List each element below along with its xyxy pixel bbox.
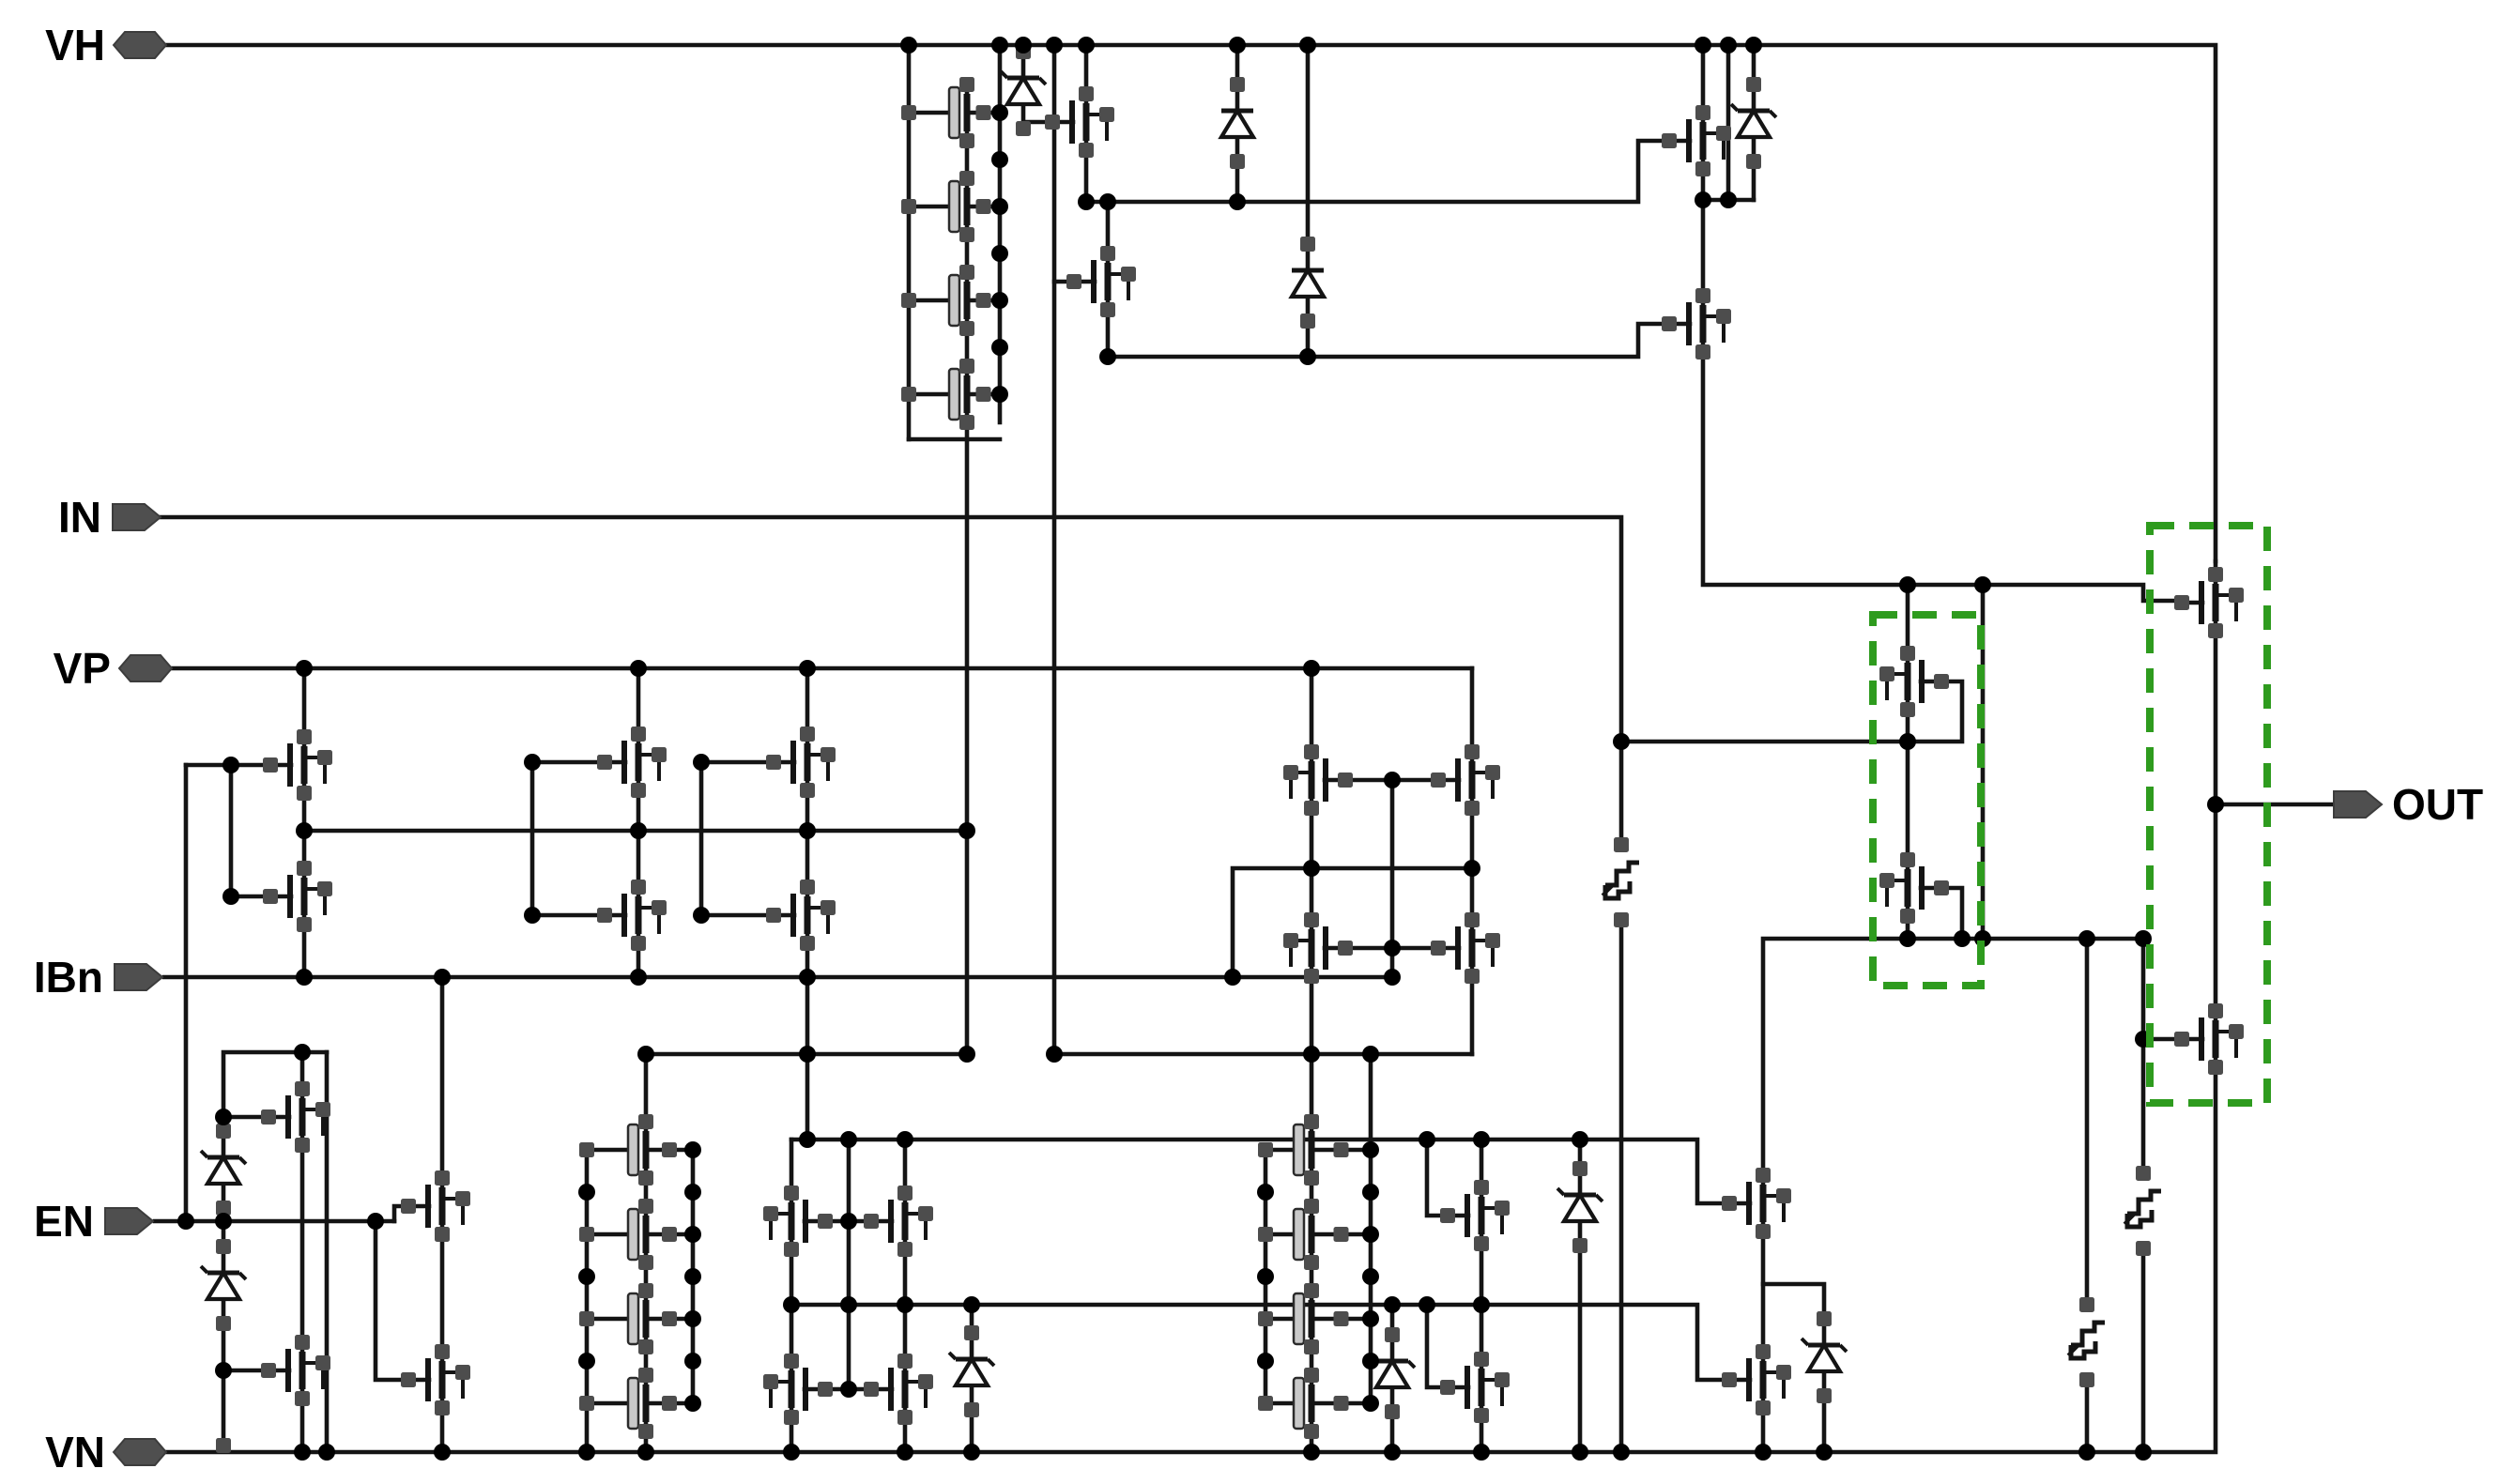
- terminal-square: [1100, 246, 1115, 261]
- mosfet-gate-bar: [888, 1200, 894, 1243]
- junction-dot: [963, 1444, 980, 1461]
- junction-dot: [897, 1131, 913, 1148]
- terminal-square: [638, 1114, 653, 1129]
- junction-dot: [991, 151, 1008, 168]
- terminal-square: [216, 1239, 231, 1254]
- terminal-square: [1304, 1283, 1319, 1298]
- terminal-square: [1304, 801, 1319, 816]
- junction-dot: [799, 822, 816, 839]
- terminal-square: [1776, 1365, 1791, 1380]
- terminal-square: [638, 1339, 653, 1354]
- terminal-square: [964, 1402, 979, 1417]
- stack-gate-plate: [628, 1293, 638, 1344]
- terminal-square: [1258, 1142, 1273, 1157]
- terminal-square: [435, 1227, 450, 1242]
- terminal-square: [401, 1199, 416, 1214]
- mosfet-gate-bar: [425, 1358, 431, 1401]
- terminal-square: [2174, 595, 2189, 610]
- junction-dot: [1257, 1268, 1274, 1285]
- terminal-square: [295, 1335, 310, 1350]
- zener-diode-icon: [207, 1273, 239, 1299]
- terminal-square: [1614, 837, 1629, 852]
- zener-hook: [1408, 1361, 1415, 1368]
- mosfet-gate-bar: [1686, 119, 1692, 162]
- terminal-square: [1474, 1236, 1489, 1251]
- mosfet-gate-bar: [1919, 866, 1925, 910]
- mosfet-gate-bar: [1465, 1194, 1470, 1237]
- junction-dot: [991, 198, 1008, 215]
- junction-dot: [2078, 1444, 2095, 1461]
- terminal-square: [1465, 969, 1480, 984]
- stack-gate-plate: [949, 275, 959, 326]
- port-pin-ibn: [115, 964, 162, 990]
- junction-dot: [991, 292, 1008, 309]
- terminal-square: [800, 727, 815, 742]
- zener-hook: [1039, 78, 1046, 84]
- junction-dot: [1384, 969, 1401, 986]
- junction-dot: [799, 969, 816, 986]
- terminal-square: [579, 1142, 594, 1157]
- terminal-square: [1695, 161, 1710, 176]
- junction-dot: [840, 1213, 857, 1230]
- diode-icon: [1292, 270, 1324, 297]
- terminal-square: [631, 727, 646, 742]
- terminal-square: [818, 1214, 833, 1229]
- stack-gate-plate: [628, 1124, 638, 1175]
- terminal-square: [579, 1311, 594, 1326]
- junction-dot: [578, 1444, 595, 1461]
- junction-dot: [991, 339, 1008, 356]
- port-pin-out: [2334, 791, 2382, 818]
- junction-dot: [215, 1362, 232, 1379]
- junction-dot: [1303, 1444, 1320, 1461]
- terminal-square: [1300, 314, 1315, 329]
- terminal-square: [295, 1391, 310, 1406]
- terminal-square: [435, 1170, 450, 1186]
- zener-diode-icon: [1808, 1345, 1840, 1371]
- junction-dot: [1720, 191, 1737, 208]
- mosfet-gate-bar: [790, 741, 796, 784]
- terminal-square: [1756, 1224, 1771, 1239]
- terminal-square: [959, 321, 974, 336]
- wire: [1427, 1140, 1446, 1216]
- terminal-square: [864, 1382, 879, 1397]
- terminal-square: [1304, 1424, 1319, 1439]
- junction-dot: [1362, 1310, 1379, 1327]
- junction-dot: [1473, 1296, 1490, 1313]
- terminal-square: [1900, 702, 1915, 717]
- terminal-square: [435, 1344, 450, 1359]
- junction-dot: [799, 660, 816, 677]
- mosfet-gate-bar: [1323, 926, 1328, 970]
- junction-dot: [1613, 733, 1630, 750]
- wire: [161, 517, 1621, 1452]
- junction-dot: [783, 1296, 800, 1313]
- terminal-square: [317, 881, 332, 896]
- mosfet-gate-bar: [425, 1185, 431, 1228]
- terminal-square: [821, 900, 836, 915]
- junction-dot: [684, 1395, 701, 1412]
- terminal-square: [261, 1363, 276, 1378]
- terminal-square: [1431, 941, 1446, 956]
- junction-dot: [1257, 1353, 1274, 1369]
- junction-dot: [578, 1184, 595, 1201]
- zener-hook: [1596, 1195, 1603, 1201]
- terminal-square: [784, 1354, 799, 1369]
- stack-gate-plate: [628, 1209, 638, 1260]
- terminal-square: [1304, 1170, 1319, 1186]
- wire: [1703, 45, 2180, 601]
- zener-hook: [239, 1273, 246, 1279]
- terminal-square: [1474, 1352, 1489, 1367]
- junction-dot: [637, 1046, 654, 1063]
- terminal-square: [1304, 1199, 1319, 1214]
- terminal-square: [216, 1438, 231, 1453]
- mosfet-gate-bar: [1746, 1358, 1752, 1401]
- terminal-square: [1283, 933, 1298, 948]
- terminal-square: [818, 1382, 833, 1397]
- zener-diode-icon: [1007, 78, 1039, 104]
- terminal-square: [976, 199, 991, 214]
- terminal-square: [1900, 909, 1915, 924]
- terminal-square: [631, 880, 646, 895]
- terminal-square: [821, 747, 836, 762]
- terminal-square: [897, 1410, 913, 1425]
- terminal-square: [897, 1186, 913, 1201]
- junction-dot: [900, 37, 917, 54]
- terminal-square: [1879, 666, 1894, 681]
- mosfet-gate-bar: [1465, 1366, 1470, 1409]
- junction-dot: [2207, 796, 2224, 813]
- mosfet-gate-bar: [287, 743, 293, 787]
- wire: [1233, 868, 1472, 977]
- terminal-square: [1334, 1227, 1349, 1242]
- junction-dot: [1257, 1184, 1274, 1201]
- junction-dot: [959, 1046, 975, 1063]
- terminal-square: [763, 1374, 778, 1389]
- terminal-square: [1756, 1168, 1771, 1183]
- junction-dot: [1899, 576, 1916, 593]
- terminal-square: [1431, 773, 1446, 788]
- terminal-square: [1695, 344, 1710, 360]
- zener-hook: [201, 1266, 207, 1273]
- junction-dot: [1362, 1184, 1379, 1201]
- terminal-square: [1300, 237, 1315, 252]
- terminal-square: [435, 1400, 450, 1415]
- terminal-square: [261, 1109, 276, 1124]
- junction-dot: [1362, 1395, 1379, 1412]
- wire: [1086, 141, 1667, 202]
- junction-dot: [1015, 37, 1032, 54]
- terminal-square: [297, 861, 312, 876]
- zener-hook: [1770, 111, 1776, 117]
- terminal-square: [1304, 969, 1319, 984]
- terminal-square: [1304, 1114, 1319, 1129]
- junction-dot: [1745, 37, 1762, 54]
- port-label-out: OUT: [2392, 780, 2483, 829]
- mosfet-gate-bar: [1323, 758, 1328, 802]
- terminal-square: [1756, 1400, 1771, 1415]
- terminal-square: [959, 171, 974, 186]
- junction-dot: [1299, 37, 1316, 54]
- junction-dot: [296, 969, 313, 986]
- port-pin-vp: [119, 655, 172, 681]
- junction-dot: [1078, 37, 1095, 54]
- terminal-square: [959, 265, 974, 280]
- terminal-square: [2079, 1297, 2094, 1312]
- junction-dot: [840, 1296, 857, 1313]
- mosfet-gate-bar: [285, 1095, 291, 1139]
- zener-diode-icon: [207, 1157, 239, 1184]
- terminal-square: [662, 1396, 677, 1411]
- terminal-square: [1495, 1372, 1510, 1387]
- port-label-ibn: IBn: [34, 953, 103, 1002]
- zener-hook: [949, 1353, 956, 1359]
- terminal-square: [297, 729, 312, 744]
- terminal-square: [1817, 1311, 1832, 1326]
- terminal-square: [1879, 873, 1894, 888]
- terminal-square: [1716, 126, 1731, 141]
- junction-dot: [693, 907, 710, 924]
- stack-gate-plate: [1294, 1378, 1304, 1429]
- mosfet-gate-bar: [888, 1368, 894, 1411]
- terminal-square: [1695, 105, 1710, 120]
- terminal-square: [766, 908, 781, 923]
- stack-gate-plate: [1294, 1209, 1304, 1260]
- terminal-square: [1099, 107, 1114, 122]
- junction-dot: [1303, 1046, 1320, 1063]
- terminal-square: [1934, 674, 1949, 689]
- mosfet-gate-bar: [287, 875, 293, 918]
- zener-hook: [988, 1359, 994, 1366]
- zener-hook: [1840, 1345, 1847, 1352]
- terminal-square: [897, 1354, 913, 1369]
- terminal-square: [2136, 1241, 2151, 1256]
- terminal-square: [1474, 1408, 1489, 1423]
- junction-dot: [840, 1131, 857, 1148]
- junction-dot: [578, 1268, 595, 1285]
- junction-dot: [684, 1268, 701, 1285]
- junction-dot: [1299, 348, 1316, 365]
- terminal-square: [216, 1124, 231, 1139]
- stack-gate-plate: [949, 181, 959, 232]
- wire: [376, 1221, 406, 1380]
- junction-dot: [1362, 1353, 1379, 1369]
- terminal-square: [297, 786, 312, 801]
- junction-dot: [684, 1184, 701, 1201]
- terminal-square: [1572, 1161, 1587, 1176]
- terminal-square: [959, 77, 974, 92]
- mosfet-gate-bar: [1746, 1182, 1752, 1225]
- terminal-square: [763, 1206, 778, 1221]
- zener-hook: [201, 1151, 207, 1157]
- junction-dot: [1695, 191, 1711, 208]
- terminal-square: [1756, 1344, 1771, 1359]
- terminal-square: [455, 1191, 470, 1206]
- terminal-square: [901, 105, 916, 120]
- junction-dot: [991, 386, 1008, 403]
- terminal-square: [1385, 1327, 1400, 1342]
- terminal-square: [315, 1102, 330, 1117]
- terminal-square: [1283, 765, 1298, 780]
- terminal-square: [579, 1396, 594, 1411]
- terminal-square: [1258, 1227, 1273, 1242]
- mosfet-gate-bar: [1686, 302, 1692, 345]
- port-label-vp: VP: [54, 644, 111, 693]
- junction-dot: [799, 1046, 816, 1063]
- junction-dot: [1974, 576, 1991, 593]
- terminal-square: [784, 1242, 799, 1257]
- mosfet-gate-bar: [621, 894, 627, 937]
- stack-gate-plate: [628, 1378, 638, 1429]
- junction-dot: [222, 888, 239, 905]
- wire: [164, 45, 2216, 561]
- terminal-square: [2208, 623, 2223, 638]
- stack-gate-plate: [1294, 1293, 1304, 1344]
- terminal-square: [1662, 316, 1677, 331]
- port-pin-in: [113, 504, 161, 530]
- port-pin-vh: [114, 32, 166, 58]
- junction-dot: [1384, 1444, 1401, 1461]
- junction-dot: [991, 245, 1008, 262]
- terminal-square: [901, 387, 916, 402]
- junction-dot: [684, 1141, 701, 1158]
- terminal-square: [1900, 646, 1915, 661]
- terminal-square: [662, 1311, 677, 1326]
- terminal-square: [597, 908, 612, 923]
- terminal-square: [959, 227, 974, 242]
- terminal-square: [1776, 1188, 1791, 1203]
- terminal-square: [1304, 744, 1319, 759]
- junction-dot: [215, 1213, 232, 1230]
- terminal-square: [1338, 773, 1353, 788]
- port-pin-en: [105, 1208, 153, 1234]
- junction-dot: [1384, 1296, 1401, 1313]
- terminal-square: [901, 199, 916, 214]
- terminal-square: [662, 1142, 677, 1157]
- mosfet-gate-bar: [790, 894, 796, 937]
- terminal-square: [2174, 1032, 2189, 1047]
- junction-dot: [1899, 733, 1916, 750]
- terminal-square: [976, 387, 991, 402]
- terminal-square: [784, 1410, 799, 1425]
- terminal-square: [964, 1325, 979, 1340]
- junction-dot: [215, 1109, 232, 1125]
- stack-gate-plate: [1294, 1124, 1304, 1175]
- terminal-square: [1900, 852, 1915, 867]
- junction-dot: [1464, 860, 1480, 877]
- junction-dot: [1362, 1046, 1379, 1063]
- terminal-square: [1334, 1396, 1349, 1411]
- stack-gate-plate: [949, 369, 959, 420]
- terminal-square: [1934, 880, 1949, 895]
- junction-dot: [2078, 930, 2095, 947]
- junction-dot: [318, 1444, 335, 1461]
- junction-dot: [524, 754, 541, 771]
- junction-dot: [840, 1381, 857, 1398]
- junction-dot: [578, 1353, 595, 1369]
- terminal-square: [1079, 86, 1094, 101]
- terminal-square: [2208, 567, 2223, 582]
- terminal-square: [295, 1081, 310, 1096]
- junction-dot: [1229, 37, 1246, 54]
- terminal-square: [864, 1214, 879, 1229]
- terminal-square: [638, 1283, 653, 1298]
- mosfet-gate-bar: [803, 1200, 808, 1243]
- terminal-square: [263, 889, 278, 904]
- terminal-square: [766, 755, 781, 770]
- junction-dot: [367, 1213, 384, 1230]
- terminal-square: [631, 936, 646, 951]
- terminal-square: [597, 755, 612, 770]
- terminal-square: [1722, 1372, 1737, 1387]
- terminal-square: [2208, 1003, 2223, 1018]
- junction-dot: [1362, 1141, 1379, 1158]
- terminal-square: [1716, 309, 1731, 324]
- terminal-square: [263, 757, 278, 773]
- terminal-square: [1334, 1311, 1349, 1326]
- terminal-square: [1121, 267, 1136, 282]
- junction-dot: [799, 1131, 816, 1148]
- terminal-square: [800, 936, 815, 951]
- junction-dot: [630, 822, 647, 839]
- terminal-square: [315, 1355, 330, 1370]
- terminal-square: [918, 1374, 933, 1389]
- junction-dot: [991, 37, 1008, 54]
- terminal-square: [1066, 274, 1081, 289]
- junction-dot: [1362, 1226, 1379, 1243]
- junction-dot: [1046, 37, 1063, 54]
- terminal-square: [918, 1206, 933, 1221]
- junction-dot: [1954, 930, 1971, 947]
- terminal-square: [2229, 1024, 2244, 1039]
- port-label-in: IN: [58, 493, 101, 542]
- terminal-square: [638, 1368, 653, 1383]
- port-pin-vn: [114, 1439, 166, 1465]
- junction-dot: [1572, 1131, 1588, 1148]
- terminal-square: [1334, 1142, 1349, 1157]
- wire: [1427, 1305, 1446, 1387]
- junction-dot: [1384, 940, 1401, 956]
- terminal-square: [1440, 1208, 1455, 1223]
- terminal-square: [1465, 744, 1480, 759]
- port-label-vh: VH: [45, 21, 105, 69]
- junction-dot: [524, 907, 541, 924]
- junction-dot: [897, 1296, 913, 1313]
- terminal-square: [1385, 1404, 1400, 1419]
- zener-hook: [1557, 1188, 1564, 1195]
- junction-dot: [296, 660, 313, 677]
- terminal-square: [1465, 912, 1480, 927]
- terminal-square: [959, 359, 974, 374]
- zener-diode-icon: [1564, 1195, 1596, 1221]
- terminal-square: [579, 1227, 594, 1242]
- terminal-square: [638, 1170, 653, 1186]
- junction-dot: [1099, 193, 1116, 210]
- junction-dot: [1899, 930, 1916, 947]
- junction-dot: [1473, 1444, 1490, 1461]
- mosfet-gate-bar: [2199, 581, 2204, 624]
- junction-dot: [1362, 1268, 1379, 1285]
- diode-icon: [1221, 111, 1253, 137]
- terminal-square: [976, 105, 991, 120]
- junction-dot: [294, 1444, 311, 1461]
- junction-dot: [693, 754, 710, 771]
- terminal-square: [1016, 121, 1031, 136]
- junction-dot: [222, 757, 239, 773]
- junction-dot: [1755, 1444, 1771, 1461]
- junction-dot: [296, 822, 313, 839]
